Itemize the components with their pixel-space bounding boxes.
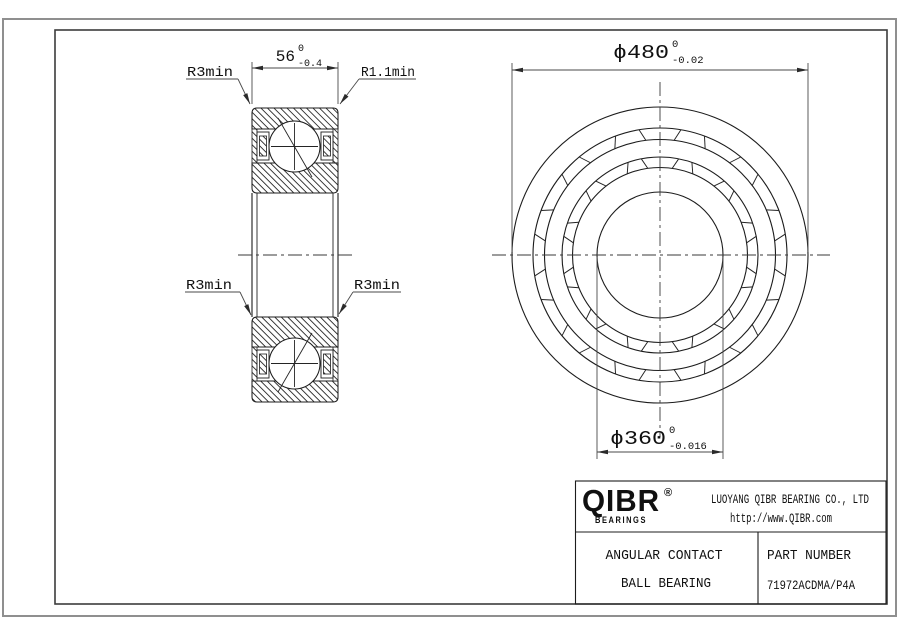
bore-dim-upper-tol: 0 [669, 425, 675, 437]
leader-mid-right [339, 292, 353, 314]
product-name-line2: BALL BEARING [621, 576, 711, 592]
outer-border [3, 19, 896, 616]
ring-shoulder-right [333, 129, 338, 163]
registered-mark-icon: ® [664, 487, 672, 499]
leader-mid-left [240, 292, 251, 315]
section-bottom [252, 317, 338, 402]
bore-dim-value: ϕ360 [610, 428, 666, 450]
leader-top-left [238, 79, 250, 104]
brand-logo: QIBR [582, 483, 660, 518]
section-view [238, 108, 352, 402]
front-view [492, 82, 830, 437]
brand-logo-sub: BEARINGS [595, 515, 647, 526]
width-dim-lower-tol: -0.4 [298, 59, 322, 70]
section-top [252, 108, 338, 193]
od-dim-lower-tol: -0.02 [672, 55, 704, 67]
bore-dim-lower-tol: -0.016 [669, 441, 707, 453]
drawing-sheet: 56 0 -0.4 R3min R1.1min R3min R3min ϕ480… [0, 0, 900, 636]
part-number-value: 71972ACDMA/P4A [767, 578, 855, 593]
title-block: QIBR ® BEARINGS LUOYANG QIBR BEARING CO.… [576, 481, 887, 604]
width-dim-value: 56 [276, 48, 295, 66]
leader-top-right [340, 79, 359, 104]
width-dim-upper-tol: 0 [298, 44, 304, 55]
company-website: http://www.QIBR.com [730, 512, 832, 526]
od-dim-value: ϕ480 [613, 42, 669, 64]
company-name: LUOYANG QIBR BEARING CO., LTD [711, 493, 869, 507]
part-number-label: PART NUMBER [767, 548, 852, 564]
ring-shoulder-left [252, 129, 257, 163]
product-name-line1: ANGULAR CONTACT [606, 548, 723, 564]
od-dim-upper-tol: 0 [672, 39, 678, 51]
